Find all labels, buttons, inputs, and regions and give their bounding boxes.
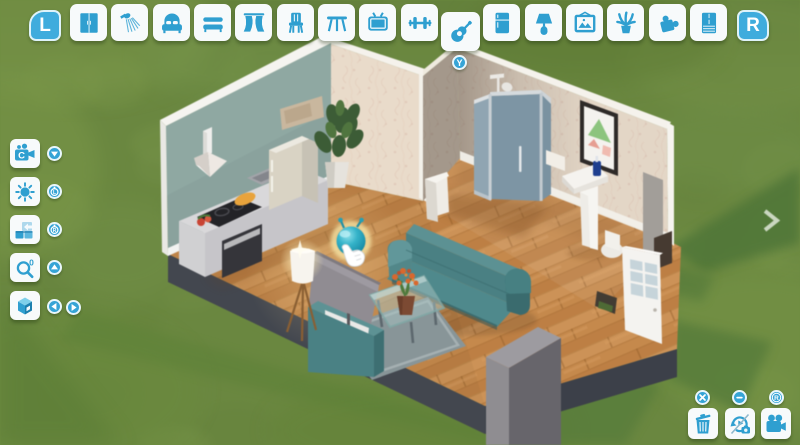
svg-text:0: 0: [29, 257, 34, 267]
svg-text:R: R: [52, 228, 56, 234]
svg-text:R: R: [774, 395, 779, 402]
svg-text:C: C: [18, 150, 25, 161]
svg-text:L: L: [52, 190, 55, 196]
